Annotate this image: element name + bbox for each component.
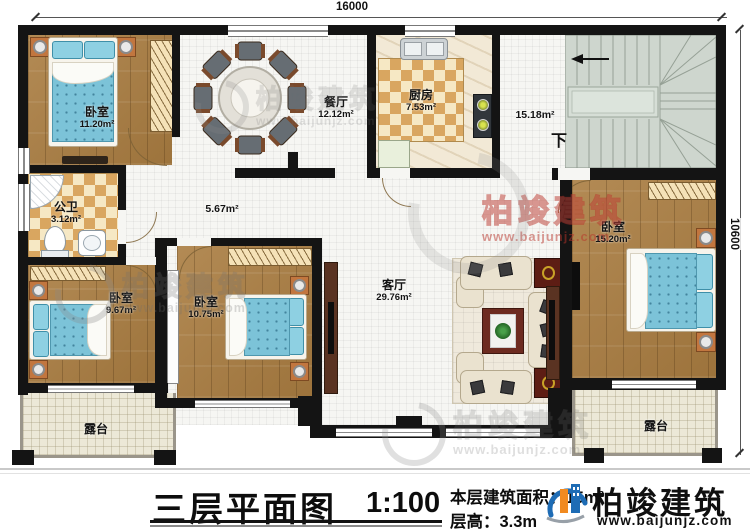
room-label: 卧室 10.75m² [166,296,246,320]
brand-logo-icon [541,477,589,525]
door-opening [558,168,590,180]
nightstand [30,37,50,57]
wall [312,238,322,400]
floor-plan-sheet: 卧室 11.20m² 餐厅 12.12m² 厨房 7.53m² 15.18m² … [0,0,750,530]
dimension-tick [735,448,744,457]
nightstand [116,37,136,57]
wall [716,25,726,380]
tv [549,300,555,360]
window [446,428,540,437]
bathroom-sink [78,230,106,256]
nightstand [29,281,48,300]
wardrobe [228,248,312,266]
nightstand [290,276,309,295]
window [405,25,455,37]
terrace-post [584,448,604,463]
wall-post [548,388,572,428]
drawing-scale: 1:100 [366,487,440,520]
window [612,380,696,389]
terrace-post [702,448,722,463]
sheet-divider [0,468,750,470]
kitchen-sink [400,38,448,60]
door-opening [380,168,410,178]
wall [18,165,126,173]
wall [288,152,298,178]
room-label: 5.67m² [182,204,262,215]
window [48,385,134,393]
fridge [378,140,410,168]
wall [560,180,572,388]
door-opening [126,257,156,265]
coffee-table [482,308,524,354]
double-bed [626,248,716,332]
tv-bench [62,156,108,164]
wall [172,35,180,137]
dining-table-set [192,40,308,156]
window [18,148,30,174]
room-label: 卧室 15.20m² [573,221,653,245]
door-opening [118,210,126,244]
double-bed [48,37,118,147]
room-label: 餐厅 12.12m² [296,96,376,120]
nightstand [696,332,716,352]
room-label: 卧室 11.20m² [57,106,137,130]
window [195,400,290,408]
wardrobe [648,182,716,200]
duct-shaft [167,270,179,384]
window [336,428,432,437]
room-label: 卧室 9.67m² [81,292,161,316]
door-opening [177,238,211,246]
tv [328,302,334,354]
wall [18,25,726,35]
staircase [565,35,716,168]
room-label: 15.18m² [495,110,575,121]
title-underline [150,525,442,527]
nightstand [696,228,716,248]
wall [235,168,335,178]
terrace-post [154,450,176,465]
stairs-down-label: 下 [551,127,567,151]
nightstand [29,360,48,379]
brand-website: www.baijunjz.com [597,513,733,528]
stove [473,94,492,138]
terrace-post [12,450,34,465]
cabinet [534,258,562,288]
room-label: 公卫 3.12m² [26,201,106,225]
dimension-line-top [35,17,727,18]
floor-height-line: 层高：3.3m [450,508,537,530]
wall-post [298,396,322,426]
dimension-top: 16000 [334,1,370,13]
wall [492,35,500,168]
room-label: 厨房 7.53m² [381,89,461,113]
room-label: 露台 [56,423,136,436]
room-label: 客厅 29.76m² [354,279,434,303]
nightstand [290,362,309,381]
room-label: 露台 [616,420,696,433]
tv [572,262,580,310]
wardrobe [30,266,106,281]
dimension-right: 10600 [726,218,742,250]
sofa [460,370,532,404]
sheet-divider [0,473,750,474]
title-underline [150,520,442,523]
window [228,25,328,37]
